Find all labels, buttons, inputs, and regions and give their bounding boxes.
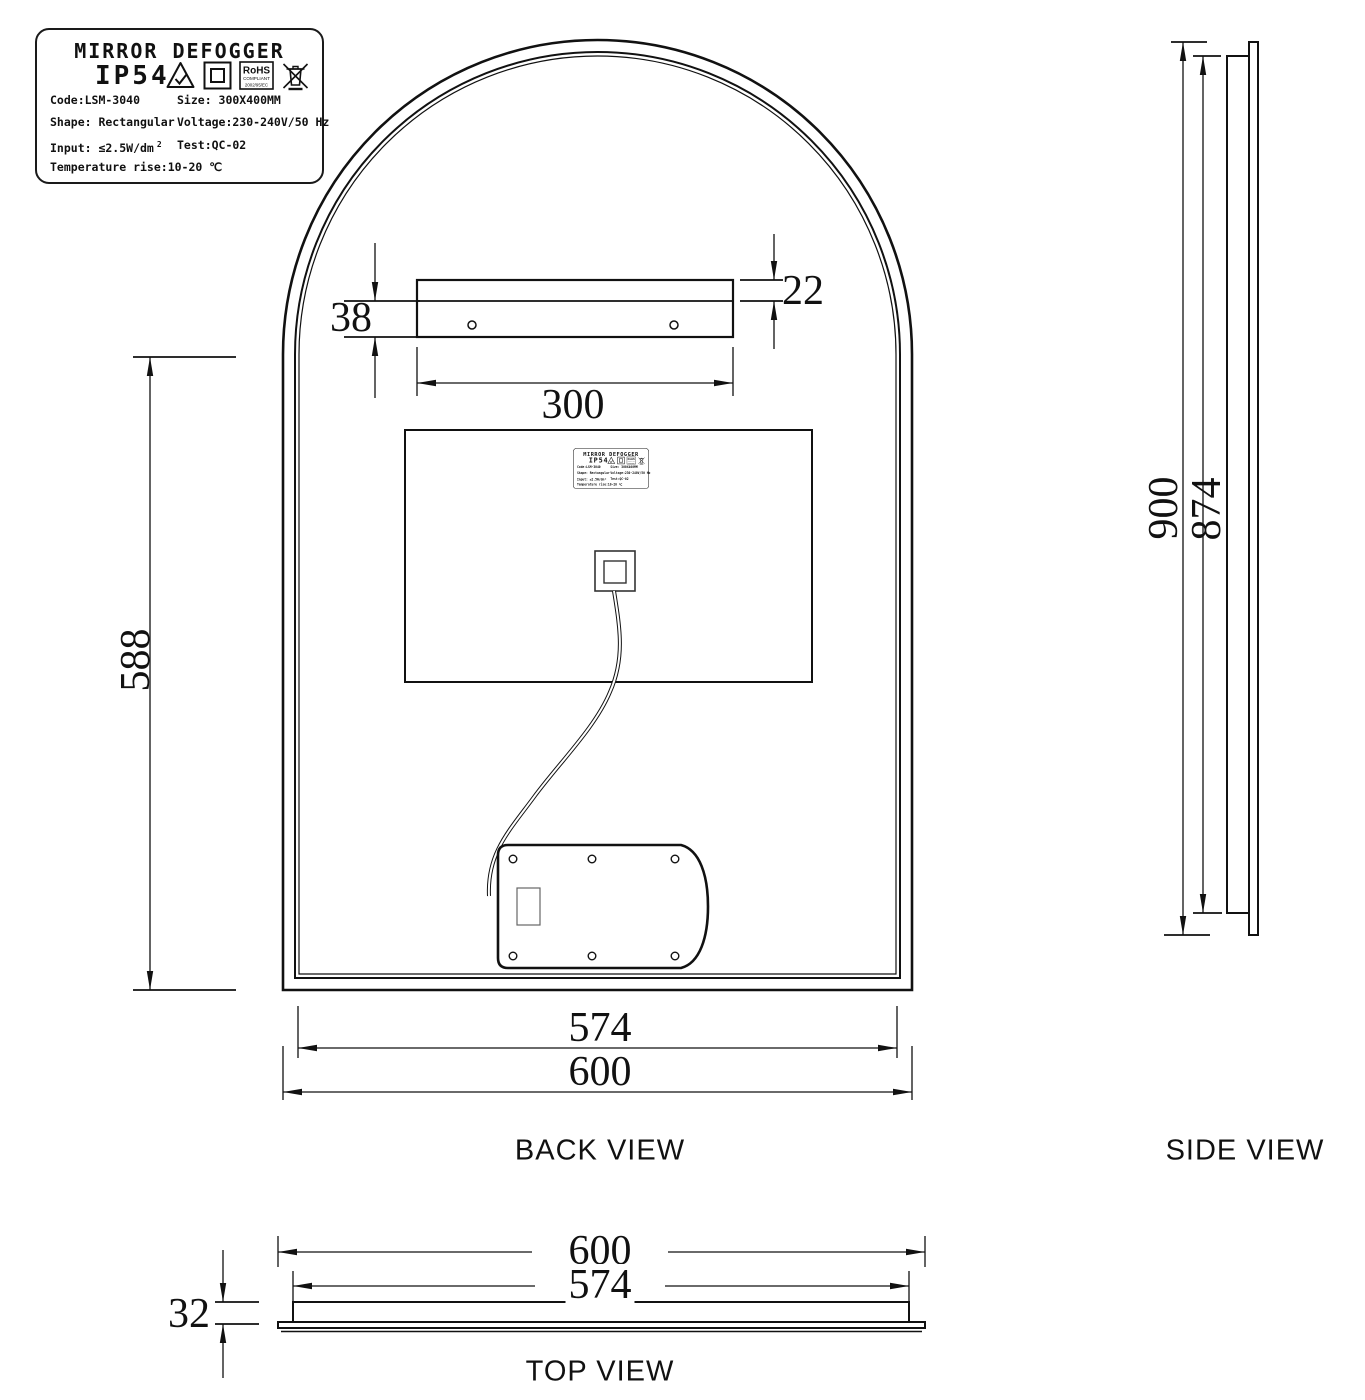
svg-text:2002/95/EC: 2002/95/EC [628,462,634,464]
top-view-caption: TOP VIEW [526,1356,675,1389]
dimension-thickness: 32 [165,1293,213,1335]
junction-box [595,551,635,591]
weee-bin-icon [280,60,311,97]
label-input-superscript: 2 [157,140,162,149]
dimension-overall-width: 600 [566,1051,635,1093]
dimension-lines-back [133,234,912,1100]
dimension-bracket-width: 300 [539,384,608,426]
label-code: Code:LSM-3040 [50,94,177,106]
label-shape: Shape: Rectangular [50,116,177,128]
svg-text:COMPLIANT: COMPLIANT [243,76,270,81]
certification-tick-icon [165,60,196,95]
ip-rating: IP54 [95,61,170,91]
product-label: MIRROR DEFOGGER IP54 RoHS COMPLIANT [35,28,324,184]
dimension-top-inner-width: 574 [566,1264,635,1306]
dimension-frame-height: 874 [1186,475,1228,544]
dimension-bracket-lower-height: 38 [327,297,375,339]
side-view-profile [1227,42,1258,935]
certification-icons: RoHS COMPLIANT 2002/95/EC [165,60,311,97]
svg-text:2002/95/EC: 2002/95/EC [245,83,268,88]
mini-label-wrap: MIRROR DEFOGGER IP54 [573,448,649,489]
label-input: Input: ≤2.5W/dm2 [50,139,177,154]
label-test: Test:QC-02 [177,139,319,154]
label-row-temperature: Temperature rise:10-20 ℃ [50,161,319,173]
mini-product-label: MIRROR DEFOGGER IP54 [573,448,649,489]
label-row-code-size: Code:LSM-3040 Size: 300X400MM [50,94,319,106]
svg-text:RoHS: RoHS [628,457,635,461]
back-view-caption: BACK VIEW [515,1135,685,1168]
double-insulation-icon [202,60,233,95]
dimension-straight-edge-height: 588 [115,626,157,695]
svg-text:RoHS: RoHS [243,66,271,77]
label-row-input-test: Input: ≤2.5W/dm2 Test:QC-02 [50,139,319,154]
label-temperature: Temperature rise:10-20 ℃ [50,161,222,173]
dimension-bracket-upper-height: 22 [779,270,827,312]
driver-unit [498,845,708,968]
label-voltage: Voltage:230-240V/50 Hz [177,116,329,128]
label-row-shape-voltage: Shape: Rectangular Voltage:230-240V/50 H… [50,116,319,128]
dimension-inner-frame-width: 574 [566,1007,635,1049]
technical-drawing-page: MIRROR DEFOGGER IP54 RoHS COMPLIANT [0,0,1365,1400]
label-size: Size: 300X400MM [177,94,319,106]
drawing-canvas [0,0,1365,1400]
side-view-caption: SIDE VIEW [1166,1135,1325,1168]
dimension-overall-height: 900 [1143,474,1185,543]
mounting-bracket [417,280,733,337]
rohs-icon: RoHS COMPLIANT 2002/95/EC [239,60,274,95]
